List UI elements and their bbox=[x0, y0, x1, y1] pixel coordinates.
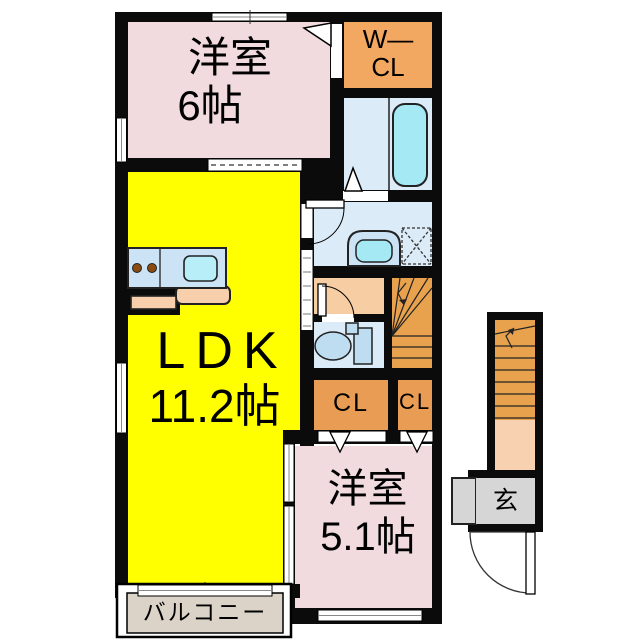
ldk-size: 11.2帖 bbox=[112, 382, 317, 430]
bedroom-bottom-size: 5.1帖 bbox=[298, 516, 438, 558]
door-leaf-washroom bbox=[306, 200, 344, 208]
entrance-label: 玄 bbox=[476, 488, 535, 514]
ldk-label: LDK bbox=[132, 324, 312, 379]
balcony-label: バルコニー bbox=[127, 600, 283, 624]
bathtub bbox=[393, 104, 427, 186]
toilet-bowl bbox=[315, 332, 351, 360]
kitchen bbox=[128, 248, 230, 309]
closet1-front bbox=[318, 431, 386, 442]
bedroom-bottom-label: 洋室 bbox=[305, 468, 430, 510]
door-leaf-toilet bbox=[318, 284, 326, 316]
entrance-porch-step bbox=[452, 478, 476, 524]
floorplan: 洋室 6帖 W— CL LDK 11.2帖 CL CL 洋室 5.1帖 バルコニ… bbox=[0, 0, 640, 640]
walkin-closet-label-line2: CL bbox=[344, 54, 432, 81]
front-door-arc bbox=[470, 532, 531, 593]
door-gap-toilet bbox=[322, 314, 354, 322]
opening-ldk-hall bbox=[302, 250, 313, 330]
kitchen-lower-counter bbox=[131, 296, 176, 309]
front-door-leaf bbox=[526, 532, 535, 594]
closet1-label: CL bbox=[314, 390, 388, 416]
burner-icon bbox=[148, 264, 157, 273]
wall-hall-stairs bbox=[384, 278, 392, 380]
door-gap-wcl bbox=[331, 24, 342, 78]
entrance-landing bbox=[495, 420, 535, 470]
washroom-sink-basin bbox=[356, 240, 392, 262]
walkin-closet-label-line1: W— bbox=[344, 26, 432, 53]
wall-left bbox=[115, 12, 128, 598]
kitchen-sink bbox=[184, 256, 217, 281]
entrance-block bbox=[452, 312, 543, 594]
toilet-cistern bbox=[346, 323, 358, 334]
wall-wcl-bath bbox=[330, 88, 442, 98]
closet2-label: CL bbox=[396, 390, 434, 413]
burner-icon bbox=[133, 264, 142, 273]
door-gap-washroom bbox=[302, 204, 313, 238]
wall-washroom-hall bbox=[300, 266, 442, 278]
wall-toilet-closet bbox=[300, 368, 442, 380]
bedroom-top-label: 洋室 bbox=[150, 36, 310, 80]
door-gap-bathroom bbox=[343, 191, 388, 201]
bedroom-top-size: 6帖 bbox=[145, 84, 275, 128]
